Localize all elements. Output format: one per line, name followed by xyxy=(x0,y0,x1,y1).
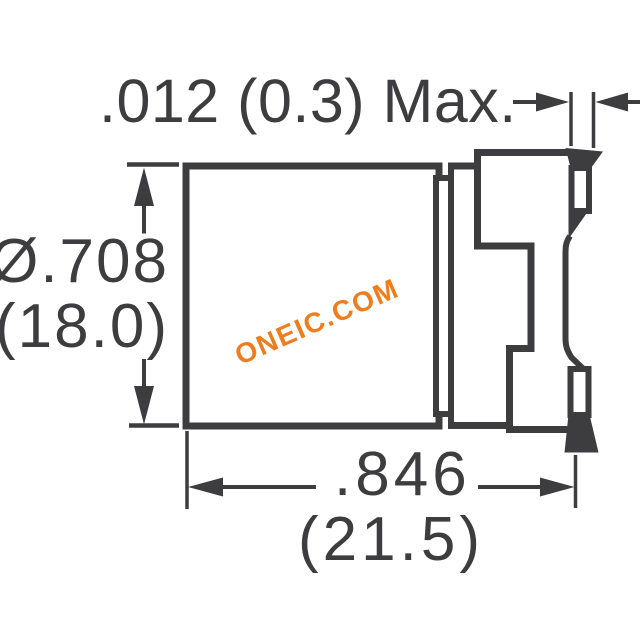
side-dimension-label: Ø.708 (18.0) xyxy=(0,229,169,359)
top-dimension-label: .012 (0.3) Max. xyxy=(99,71,517,132)
bottom-lead xyxy=(565,369,599,453)
bottom-lead-rect xyxy=(571,369,589,415)
top-arrow-right-head xyxy=(596,93,629,112)
bottom-arrow-right-head xyxy=(540,478,575,497)
technical-drawing: .012 (0.3) Max. Ø.708 (18.0) .846 (21.5)… xyxy=(0,0,640,640)
top-arrow-left-head xyxy=(536,93,569,112)
base-step-profile xyxy=(478,149,532,429)
bottom-lead-foot xyxy=(565,415,599,453)
bottom-dimension-metric: (21.5) xyxy=(298,509,484,571)
lead-side-edge xyxy=(566,236,585,370)
top-lead xyxy=(566,148,604,370)
base-bottom-edge xyxy=(448,426,568,430)
top-dimension-lines xyxy=(513,92,640,148)
side-arrow-down-head xyxy=(134,386,154,425)
side-dimension-metric: (18.0) xyxy=(0,294,169,359)
side-dimension-value: Ø.708 xyxy=(0,229,169,294)
top-lead-rect xyxy=(572,168,590,211)
bottom-dimension-value: .846 xyxy=(334,444,471,506)
side-arrow-up-head xyxy=(134,168,154,207)
bottom-arrow-left-head xyxy=(188,478,223,497)
mount-base xyxy=(448,149,570,430)
